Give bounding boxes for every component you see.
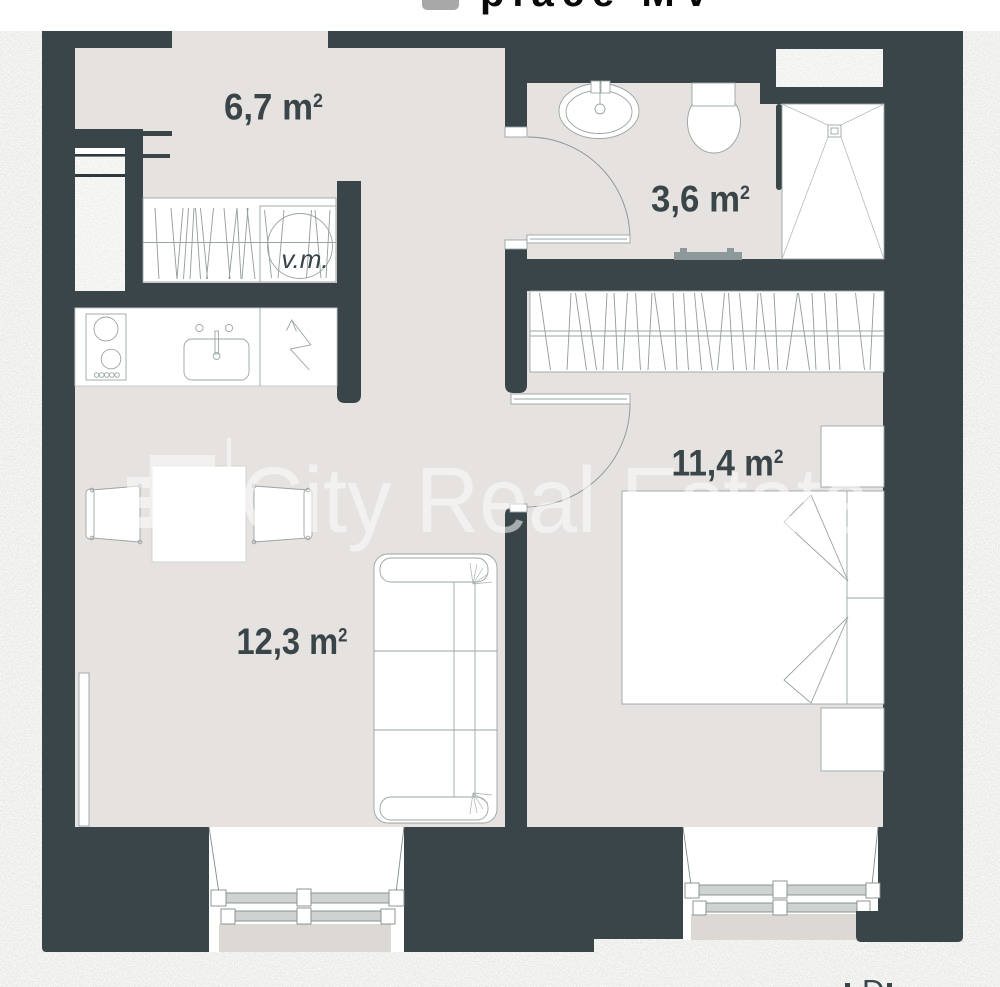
- svg-text:v.m.: v.m.: [281, 244, 328, 274]
- svg-text:3,6 m2: 3,6 m2: [651, 179, 750, 220]
- svg-text:6,7 m2: 6,7 m2: [224, 87, 323, 128]
- svg-text:11,4 m2: 11,4 m2: [672, 443, 784, 484]
- svg-text:D: D: [862, 973, 884, 987]
- svg-text:12,3 m2: 12,3 m2: [237, 621, 348, 662]
- svg-text:place MV: place MV: [480, 0, 717, 15]
